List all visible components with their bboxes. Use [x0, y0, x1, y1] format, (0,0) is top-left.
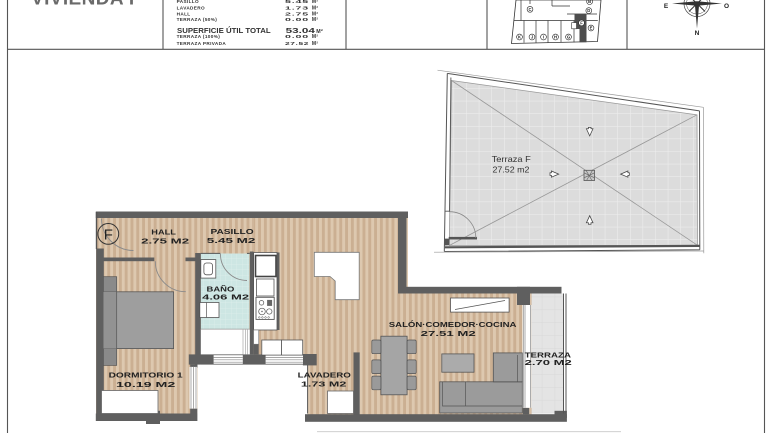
svg-text:M²: M²: [312, 34, 319, 40]
svg-text:G: G: [567, 35, 570, 40]
svg-text:M²: M²: [312, 41, 319, 47]
svg-text:0.00: 0.00: [285, 17, 309, 22]
svg-text:B: B: [588, 0, 591, 4]
svg-text:LAVADERO: LAVADERO: [177, 6, 205, 11]
svg-text:F: F: [580, 20, 583, 25]
svg-text:HALL: HALL: [177, 12, 191, 17]
svg-text:PASILLO: PASILLO: [177, 0, 199, 4]
svg-text:2.70 M2: 2.70 M2: [525, 358, 572, 367]
svg-text:PASILLO: PASILLO: [211, 227, 254, 236]
svg-text:4.06 M2: 4.06 M2: [202, 292, 249, 301]
svg-text:M²: M²: [312, 17, 319, 23]
svg-text:F: F: [104, 227, 113, 244]
svg-text:K: K: [518, 35, 521, 40]
svg-text:SALÓN·COMEDOR·COCINA: SALÓN·COMEDOR·COCINA: [389, 320, 517, 329]
svg-text:DORMITORIO 1: DORMITORIO 1: [109, 371, 183, 380]
svg-text:HALL: HALL: [151, 228, 176, 237]
svg-text:1.73 M2: 1.73 M2: [301, 379, 347, 388]
svg-text:M²: M²: [312, 0, 319, 5]
svg-text:C: C: [528, 7, 531, 12]
svg-text:N: N: [695, 30, 700, 37]
svg-text:TERRAZA (50%): TERRAZA (50%): [177, 17, 218, 22]
svg-text:LAVADERO: LAVADERO: [298, 370, 351, 379]
svg-text:5.45 M2: 5.45 M2: [207, 236, 256, 245]
svg-text:27.52 m2: 27.52 m2: [493, 166, 530, 175]
svg-text:Terraza F: Terraza F: [492, 155, 531, 164]
svg-text:2.75: 2.75: [285, 12, 309, 17]
svg-text:10.19 M2: 10.19 M2: [116, 380, 175, 389]
svg-text:E: E: [664, 3, 669, 10]
svg-text:O: O: [724, 3, 729, 10]
svg-text:5.45: 5.45: [285, 0, 309, 4]
svg-text:E: E: [590, 26, 593, 31]
svg-text:TERRAZA PRIVADA: TERRAZA PRIVADA: [177, 41, 227, 46]
svg-text:27.51 M2: 27.51 M2: [421, 329, 476, 338]
svg-text:H: H: [554, 35, 557, 40]
svg-text:2.75 M2: 2.75 M2: [141, 236, 189, 245]
svg-text:1.73: 1.73: [285, 6, 309, 11]
svg-text:0.00: 0.00: [285, 34, 309, 39]
svg-text:I: I: [543, 35, 544, 40]
svg-text:27.52: 27.52: [285, 41, 309, 46]
svg-text:TERRAZA (100%): TERRAZA (100%): [177, 34, 221, 39]
svg-text:D: D: [587, 8, 590, 13]
